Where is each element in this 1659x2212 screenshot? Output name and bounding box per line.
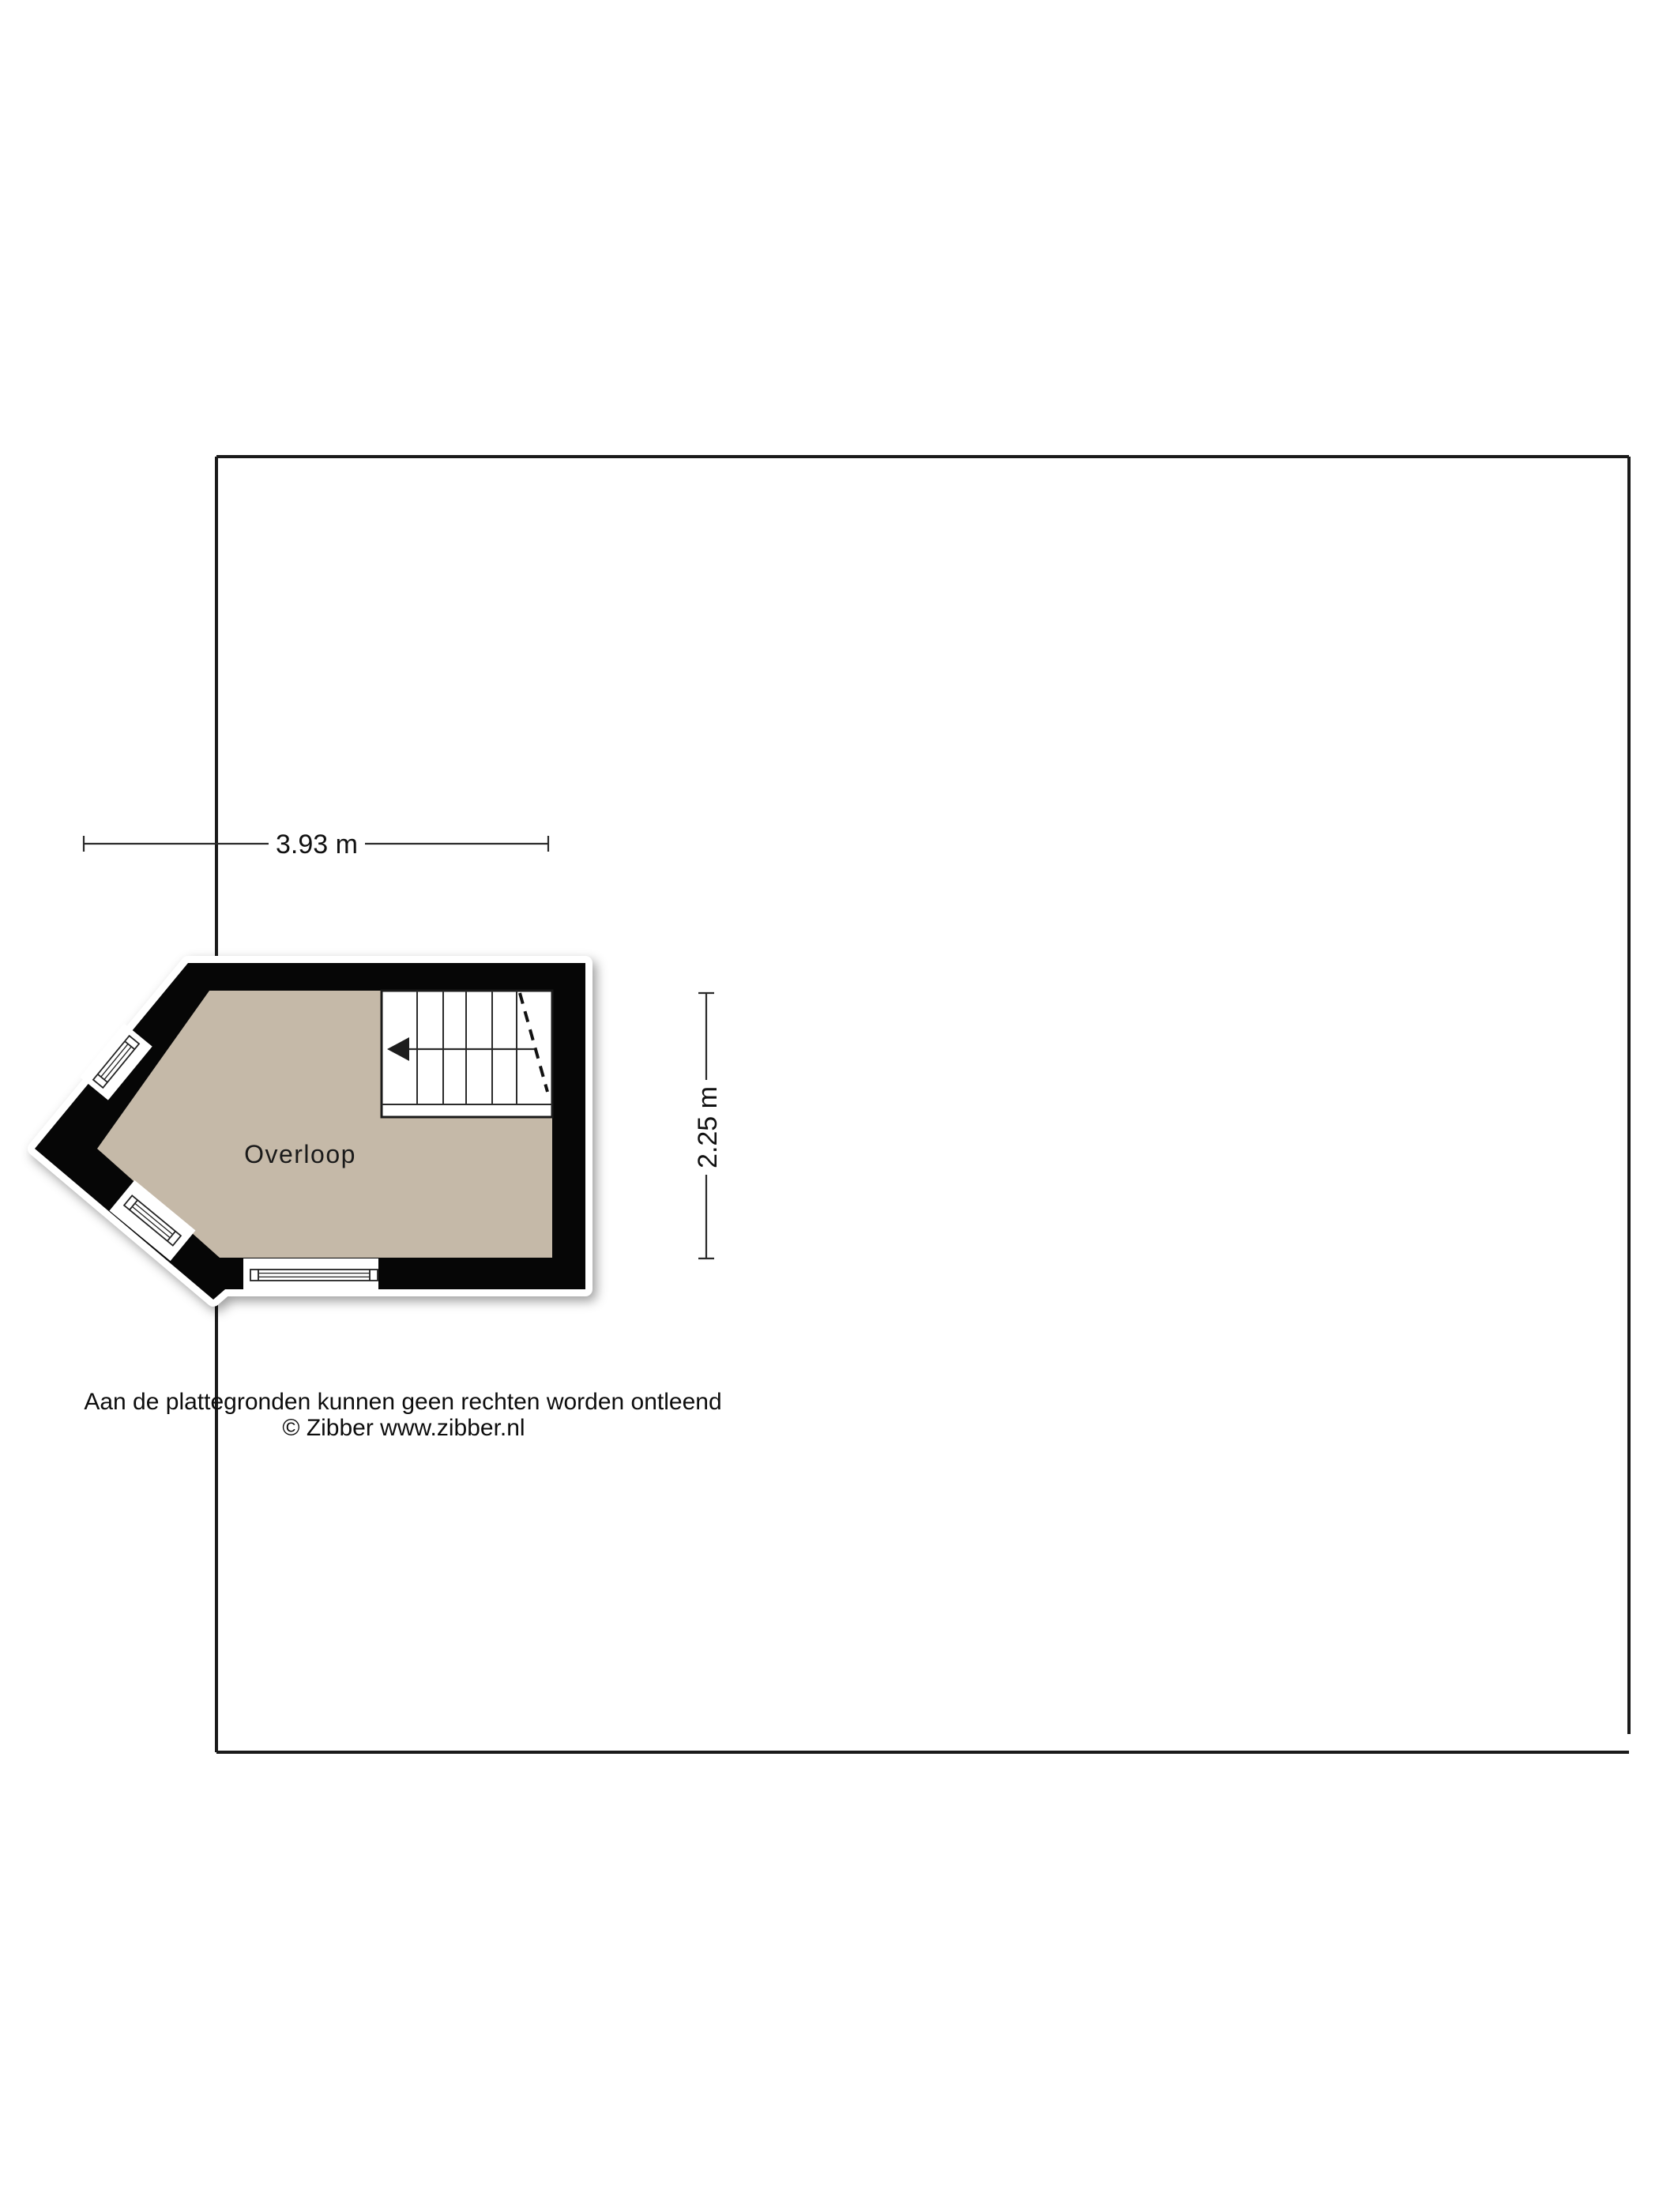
dimension-width-label: 3.93 m: [276, 829, 358, 860]
dimension-width: 3.93 m: [84, 829, 548, 860]
floorplan-page: 3.93 m: [0, 0, 1659, 2212]
window-bottom: [243, 1258, 378, 1289]
copyright-text: © Zibber www.zibber.nl: [282, 1415, 525, 1441]
room-label: Overloop: [244, 1140, 356, 1168]
dimension-height-label: 2.25 m: [693, 1086, 723, 1168]
disclaimer-text: Aan de plattegronden kunnen geen rechten…: [84, 1389, 721, 1415]
dimension-height: 2.25 m: [693, 993, 723, 1258]
floorplan: Overloop: [35, 963, 585, 1300]
stairs: [382, 991, 552, 1117]
footer: Aan de plattegronden kunnen geen rechten…: [84, 1389, 721, 1441]
